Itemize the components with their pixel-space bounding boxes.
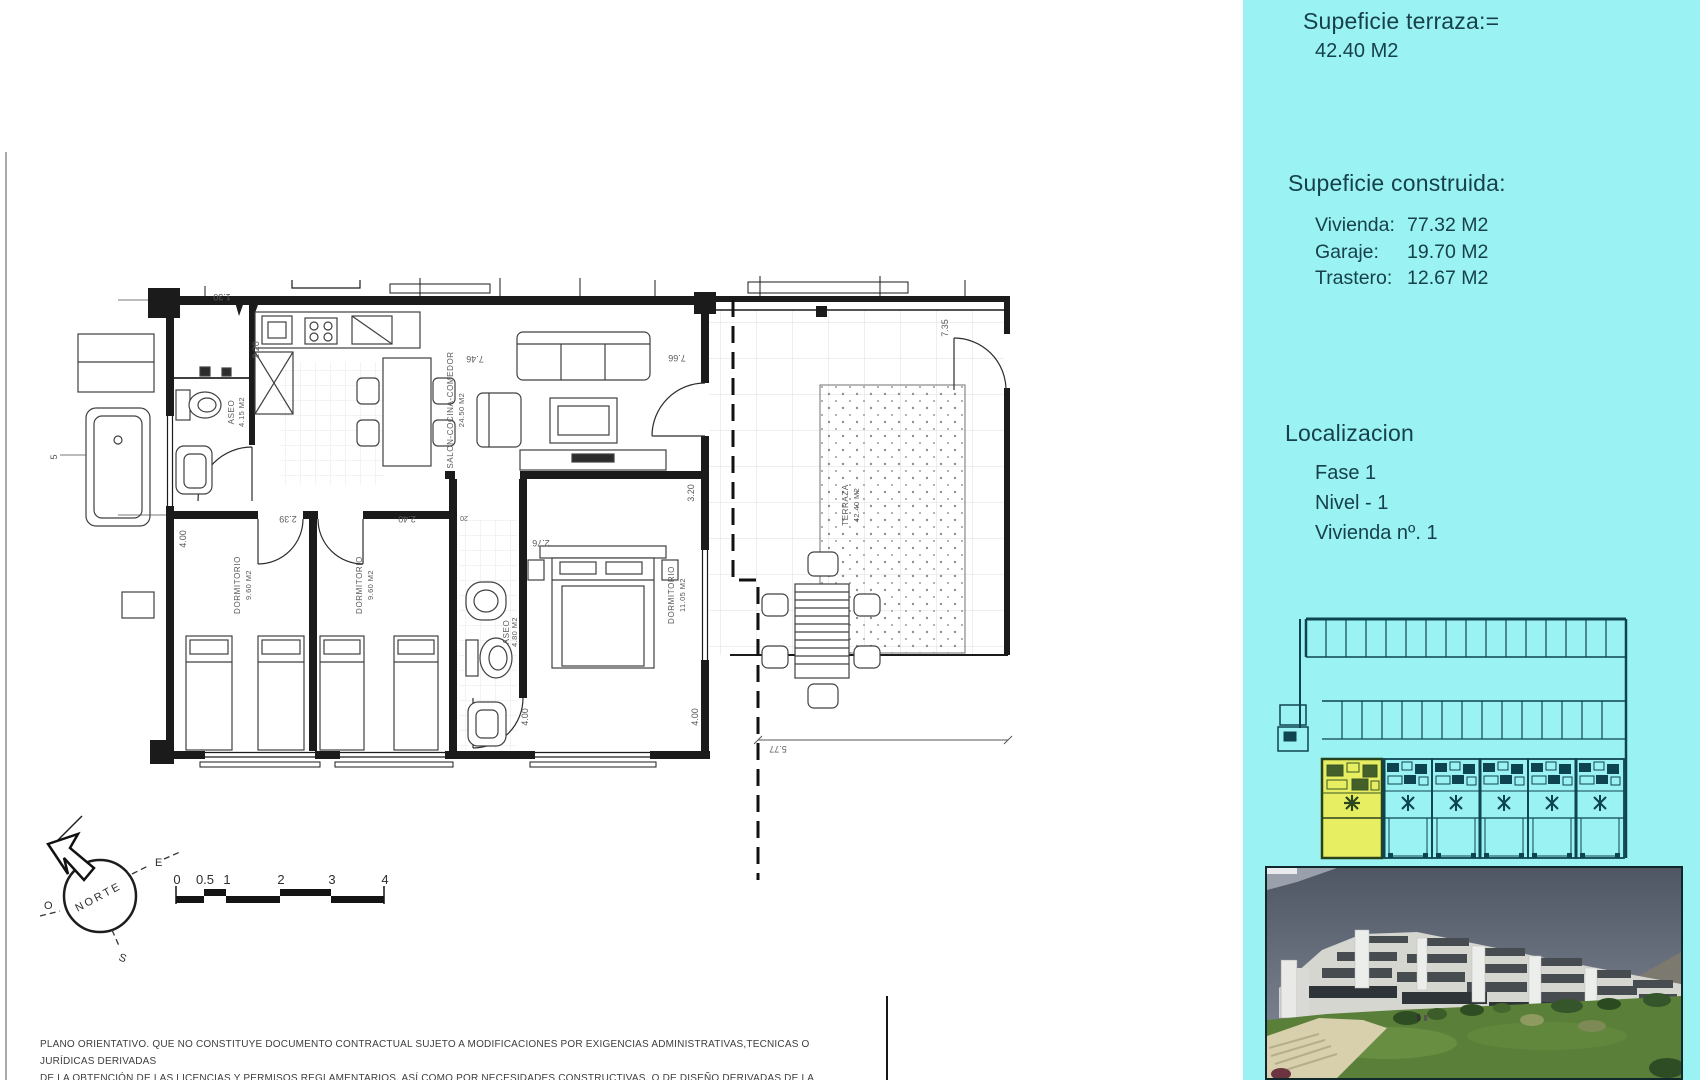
terraza-value: 42.40 M2 [1315, 40, 1398, 63]
dim-5-77: 5.77 [769, 744, 787, 754]
room-area-salon: 24.50 M2 [457, 393, 466, 427]
scale-tick-05: 0.5 [196, 872, 214, 887]
construida-value: 12.67 M2 [1407, 265, 1488, 292]
dim-5: 5 [49, 454, 59, 459]
localizacion-vivienda: Vivienda nº. 1 [1315, 518, 1438, 548]
room-area-dorm3: 11.05 M2 [678, 578, 687, 612]
compass-west-label: O [44, 900, 53, 912]
construida-rows: Vivienda: 77.32 M2 Garaje: 19.70 M2 Tras… [1315, 212, 1488, 292]
dim-4-00-left: 4.00 [178, 530, 188, 548]
building-photo-render [1267, 868, 1681, 1078]
localizacion-fase: Fase 1 [1315, 458, 1438, 488]
room-label-dorm3: DORMITORIO [667, 566, 676, 624]
dim-2-40: 2.40 [398, 514, 416, 524]
room-area-aseo1: 4.15 M2 [237, 397, 246, 427]
construida-title: Supeficie construida: [1288, 170, 1506, 197]
dim-4-00-terr: 4.00 [690, 708, 700, 726]
scale-tick-2: 2 [277, 872, 284, 887]
localizacion-items: Fase 1 Nivel - 1 Vivienda nº. 1 [1315, 458, 1438, 548]
dim-0-20: 20 [460, 514, 468, 521]
construida-label: Vivienda: [1315, 212, 1407, 239]
construida-row-vivienda: Vivienda: 77.32 M2 [1315, 212, 1488, 239]
dim-1-30: 1.30 [213, 292, 231, 302]
compass-east-label: E [155, 857, 162, 869]
info-sidebar: Supeficie terraza:= 42.40 M2 Supeficie c… [1243, 0, 1700, 1080]
room-area-dorm1: 9.60 M2 [244, 570, 253, 600]
dim-7-66: 7.66 [668, 353, 686, 363]
scale-tick-1: 1 [223, 872, 230, 887]
room-label-dorm1: DORMITORIO [233, 556, 242, 614]
scale-tick-3: 3 [328, 872, 335, 887]
disclaimer-text: PLANO ORIENTATIVO. QUE NO CONSTITUYE DOC… [40, 1036, 820, 1080]
highlighted-unit [1322, 759, 1382, 858]
room-label-salon: SALON-COCINA-COMEDOR [446, 351, 455, 468]
scale-bar: 0 0.5 1 2 3 4 [168, 856, 408, 916]
room-area-aseo2: 4.80 M2 [510, 617, 519, 647]
dim-line [754, 736, 1012, 744]
footer-divider-line [886, 996, 888, 1080]
dim-7-46: 7.46 [466, 354, 484, 364]
room-area-terraza: 42.40 M2 [852, 488, 861, 522]
room-label-dorm2: DORMITORIO [355, 556, 364, 614]
floor-plan-drawing: ASEO 4.15 M2 SALON-COCINA-COMEDOR 24.50 … [0, 250, 1040, 890]
construida-row-trastero: Trastero: 12.67 M2 [1315, 265, 1488, 292]
dim-2-39: 2.39 [279, 514, 297, 524]
room-area-dorm2: 9.60 M2 [366, 570, 375, 600]
localizacion-nivel: Nivel - 1 [1315, 488, 1438, 518]
construida-value: 77.32 M2 [1407, 212, 1488, 239]
dim-2-20: 2.20 [251, 341, 261, 359]
compass-south-label: S [117, 952, 128, 966]
dim-4-00-hall: 4.00 [520, 708, 530, 726]
disclaimer-line-2: DE LA OBTENCIÓN DE LAS LICENCIAS Y PERMI… [40, 1070, 820, 1080]
localizacion-title: Localizacion [1285, 420, 1414, 447]
site-key-plan [1272, 613, 1632, 861]
dim-3-20: 3.20 [686, 484, 696, 502]
room-label-aseo1: ASEO [227, 400, 236, 425]
construida-label: Trastero: [1315, 265, 1407, 292]
construida-label: Garaje: [1315, 239, 1407, 266]
disclaimer-line-1: PLANO ORIENTATIVO. QUE NO CONSTITUYE DOC… [40, 1036, 820, 1070]
construida-value: 19.70 M2 [1407, 239, 1488, 266]
room-label-terraza: TERRAZA [841, 484, 850, 526]
scale-tick-0: 0 [173, 872, 180, 887]
building-photo [1265, 866, 1683, 1080]
scale-tick-4: 4 [381, 872, 388, 887]
dim-7-35: 7.35 [940, 319, 950, 337]
plan-page: ASEO 4.15 M2 SALON-COCINA-COMEDOR 24.50 … [0, 0, 1700, 1080]
dim-2-76: 2.76 [532, 538, 550, 548]
construida-row-garaje: Garaje: 19.70 M2 [1315, 239, 1488, 266]
terraza-title: Supeficie terraza:= [1303, 8, 1499, 35]
